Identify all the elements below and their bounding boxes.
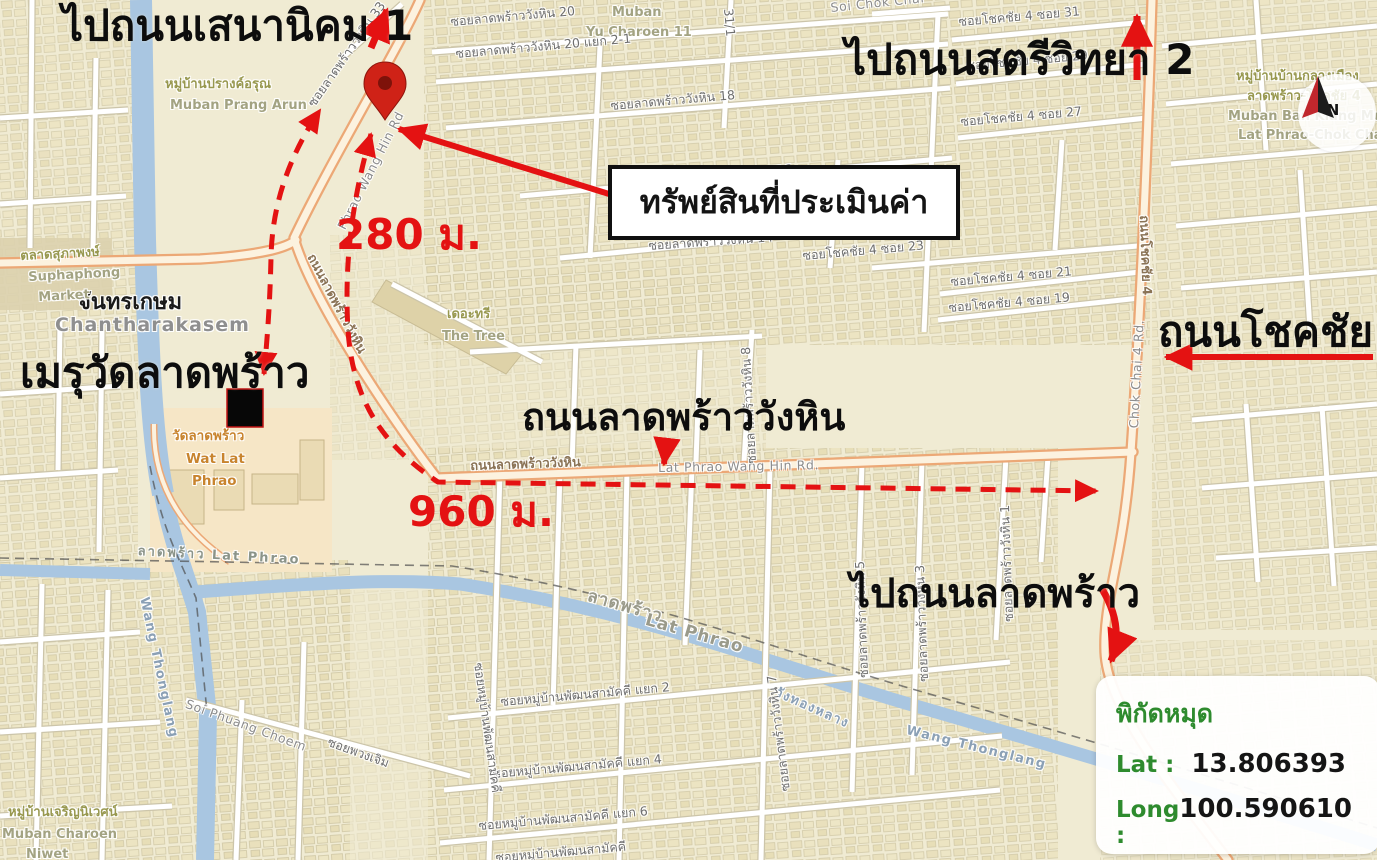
latitude-row: Lat : 13.806393 [1116,749,1360,779]
map-screenshot: ซอยลาดพร้าววังหิน 20MubanYu Charoen 11ซอ… [0,0,1377,860]
label-lat-phrao-wang-hin-road: ถนนลาดพร้าววังหิน [522,397,845,439]
appraised-property-callout: ทรัพย์สินที่ประเมินค่า [608,165,960,240]
label-crematorium: เมรุวัดลาดพร้าว [20,350,309,396]
distance-280m: 280 ม. [336,214,482,256]
compass-rose: N [1298,74,1376,152]
coordinate-panel: พิกัดหมุด Lat : 13.806393 Long : 100.590… [1096,676,1377,854]
distance-960m: 960 ม. [408,491,554,533]
longitude-row: Long : 100.590610 [1116,794,1360,849]
label-chok-chai-4-road: ถนนโชคชัย 4 [1158,309,1377,355]
longitude-label: Long : [1116,797,1179,849]
appraised-property-label: ทรัพย์สินที่ประเมินค่า [640,177,929,228]
coordinate-panel-title: พิกัดหมุด [1116,694,1360,734]
latitude-value: 13.806393 [1191,749,1346,779]
label-to-lat-phrao: ไปถนนลาดพร้าว [850,572,1140,616]
label-to-satri-witthaya-2: ไปถนนสตรีวิทยา 2 [845,37,1194,83]
latitude-label: Lat : [1116,752,1174,778]
label-to-sena-nikhom-1: ไปถนนเสนานิคม 1 [62,3,413,49]
longitude-value: 100.590610 [1179,794,1352,824]
north-arrow-icon [1298,74,1338,120]
